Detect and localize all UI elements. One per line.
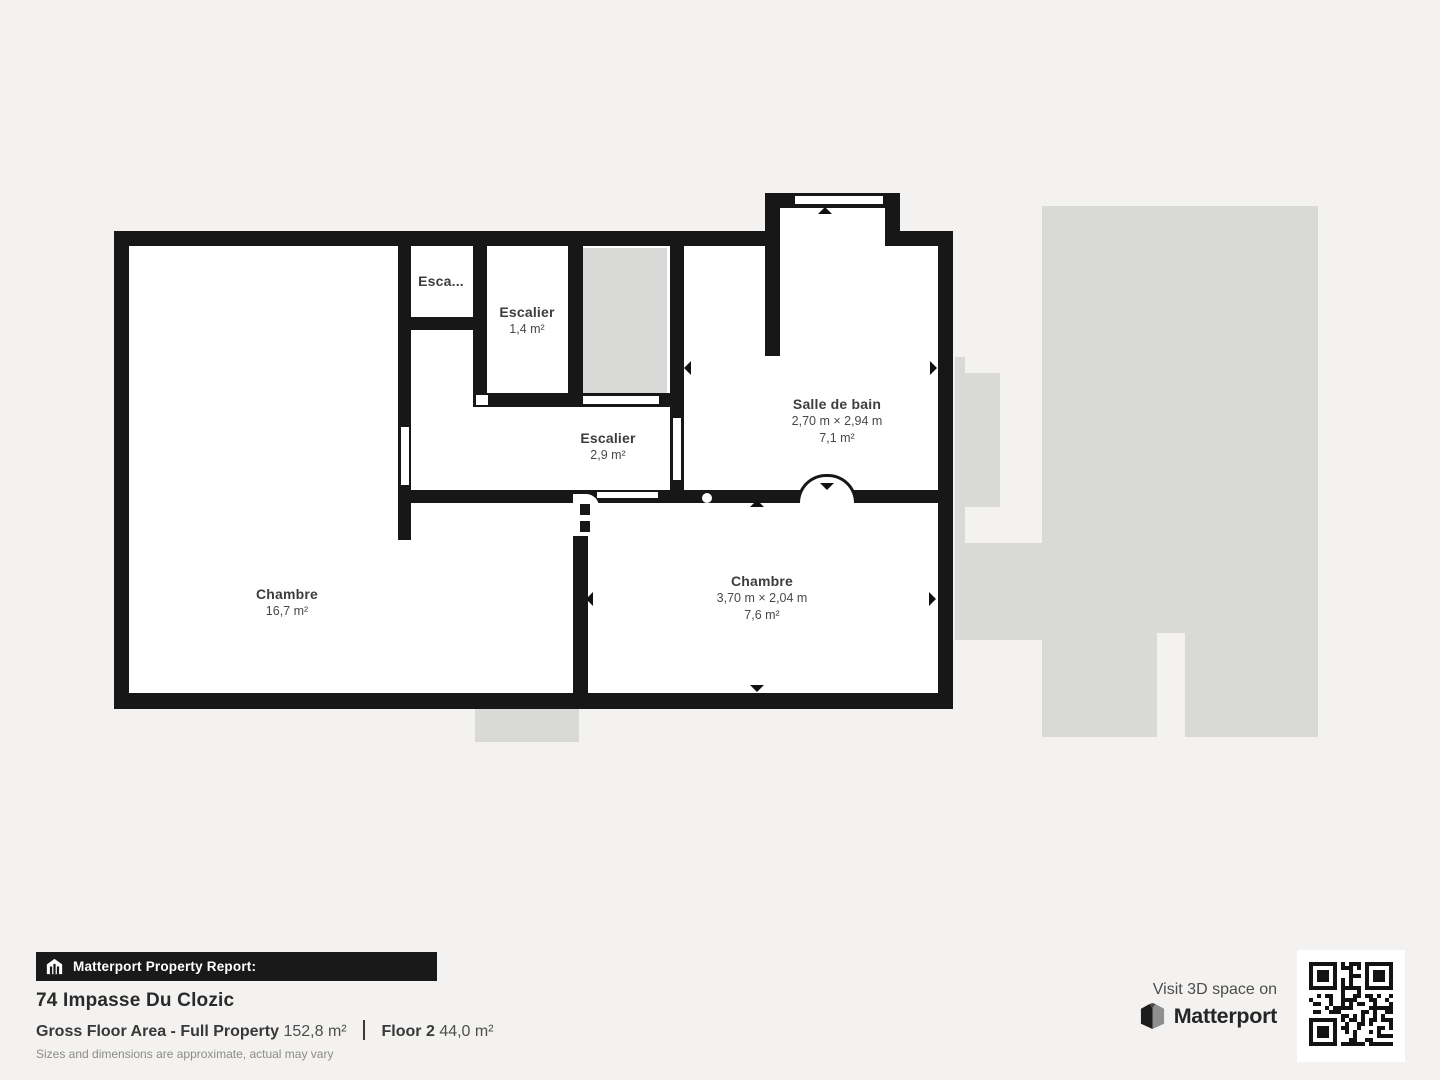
wall-outer-top <box>114 231 765 246</box>
room-name: Escalier <box>580 429 635 447</box>
wall-stair-left <box>473 231 487 407</box>
property-address: 74 Impasse Du Clozic <box>36 990 234 1012</box>
wall-outer-right <box>938 231 953 709</box>
door-opening-stair <box>476 395 488 405</box>
report-banner: Matterport Property Report: <box>36 952 437 981</box>
room-dimensions: 2,70 m × 2,94 m <box>792 413 883 430</box>
wall-between-bedrooms <box>573 535 588 709</box>
door-pivot-dot <box>702 493 712 503</box>
arrow-down-icon <box>820 483 834 490</box>
window-bay <box>795 196 883 204</box>
matterport-logo-icon <box>1139 1003 1166 1030</box>
qr-code-box <box>1297 950 1405 1062</box>
arrow-right-icon <box>929 592 936 606</box>
area-stats: Gross Floor Area - Full Property 152,8 m… <box>36 1020 494 1041</box>
door-hinge-top <box>580 504 590 515</box>
wall-bay-left <box>765 193 780 356</box>
room-area: 2,9 m² <box>580 447 635 464</box>
property-silhouette-void <box>583 248 667 393</box>
arrow-down-icon <box>750 685 764 692</box>
wall-outer-left <box>114 231 129 709</box>
room-name: Salle de bain <box>792 395 883 413</box>
room-label-chambre-1: Chambre 16,7 m² <box>256 585 318 620</box>
room-name: Escalier <box>499 303 554 321</box>
property-silhouette-a <box>965 373 1000 507</box>
stats-divider <box>363 1020 365 1040</box>
matterport-brand: Matterport <box>1139 1003 1277 1030</box>
arrow-left-icon <box>684 361 691 375</box>
room-name: Esca... <box>418 272 464 290</box>
gross-area-label: Gross Floor Area - Full Property <box>36 1023 279 1040</box>
opening-bedroom-top <box>597 492 658 498</box>
room-area: 16,7 m² <box>256 603 318 620</box>
arrow-left-icon <box>586 592 593 606</box>
arrow-up-icon <box>818 207 832 214</box>
visit-3d-text: Visit 3D space on <box>1153 981 1277 999</box>
room-label-salle-de-bain: Salle de bain 2,70 m × 2,94 m 7,1 m² <box>792 395 883 447</box>
room-label-esca: Esca... <box>418 272 464 290</box>
floor-plan: Chambre 16,7 m² Esca... Escalier 1,4 m² … <box>0 0 1440 940</box>
property-silhouette-notch <box>1157 633 1185 737</box>
room-area: 7,6 m² <box>717 607 808 624</box>
floor-area-value: 44,0 m² <box>439 1023 493 1040</box>
property-silhouette-bottom <box>475 709 579 742</box>
window-divider <box>401 427 409 485</box>
room-label-chambre-2: Chambre 3,70 m × 2,04 m 7,6 m² <box>717 572 808 624</box>
wall-horizontal-mid <box>398 490 953 503</box>
room-dimensions: 3,70 m × 2,04 m <box>717 590 808 607</box>
wall-bay-right <box>885 193 900 246</box>
house-icon <box>46 958 63 975</box>
property-silhouette-b <box>955 543 1042 640</box>
matterport-wordmark: Matterport <box>1174 1004 1277 1029</box>
room-label-escalier-small: Escalier 1,4 m² <box>499 303 554 338</box>
report-banner-label: Matterport Property Report: <box>73 959 256 974</box>
room-name: Chambre <box>717 572 808 590</box>
wall-esca-bottom <box>411 317 473 330</box>
room-area: 7,1 m² <box>792 430 883 447</box>
disclaimer-text: Sizes and dimensions are approximate, ac… <box>36 1047 333 1061</box>
room-name: Chambre <box>256 585 318 603</box>
room-label-escalier: Escalier 2,9 m² <box>580 429 635 464</box>
gross-area-value: 152,8 m² <box>283 1023 346 1040</box>
opening-stair-bottom <box>583 396 659 404</box>
property-silhouette-right-sliver <box>955 357 965 552</box>
arrow-right-icon <box>930 361 937 375</box>
wall-stair-right <box>568 231 583 393</box>
floor-label: Floor 2 <box>382 1023 435 1040</box>
room-area: 1,4 m² <box>499 321 554 338</box>
door-hinge-bottom <box>580 521 590 532</box>
window-bathroom-wall <box>673 418 681 480</box>
arrow-up-icon <box>750 500 764 507</box>
qr-code <box>1309 962 1393 1046</box>
wall-outer-bottom <box>114 693 953 709</box>
